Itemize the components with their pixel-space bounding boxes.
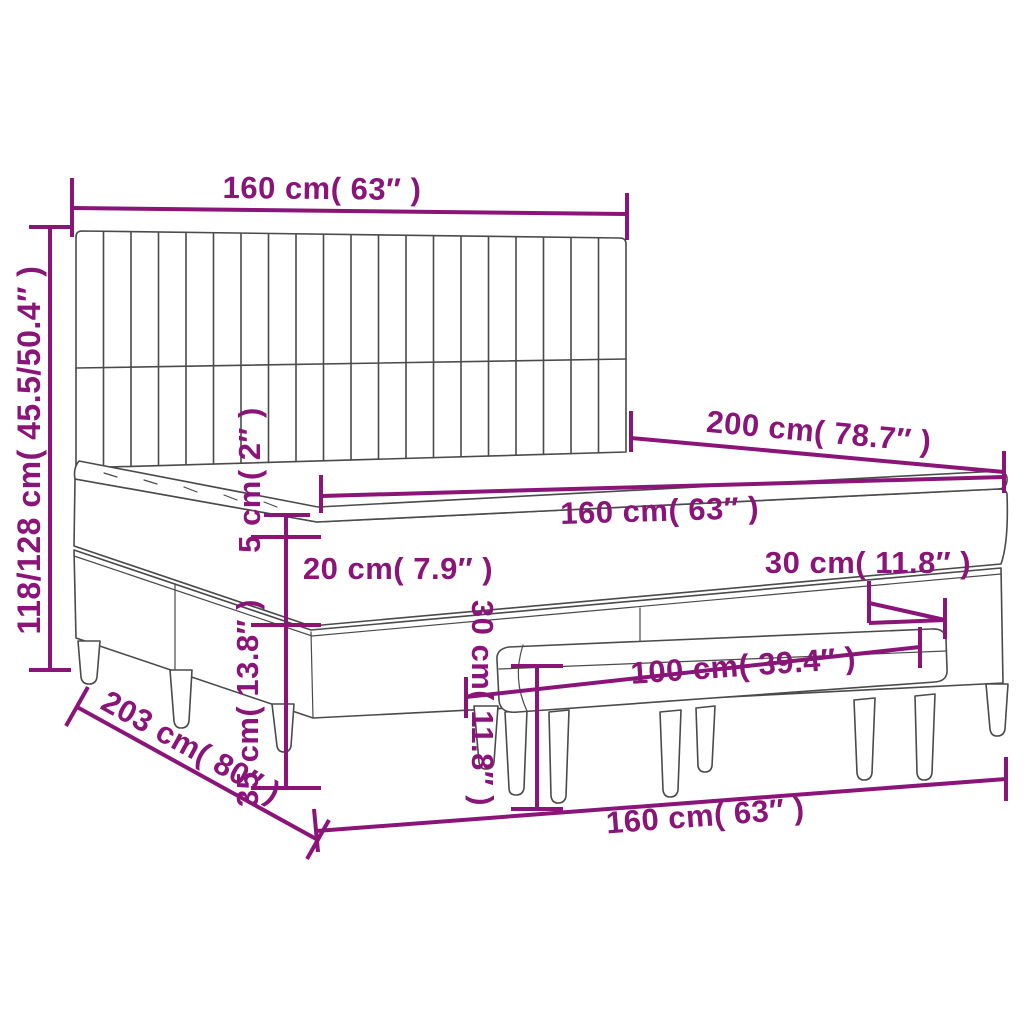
dim-label-headboard-width: 160 cm( 63″ ) <box>222 170 421 207</box>
bed-leg <box>986 684 1008 736</box>
bench-leg <box>549 710 569 803</box>
bench-leg <box>660 710 681 797</box>
dim-label-bed-height: 118/128 cm( 45.5/50.4″ ) <box>11 266 47 635</box>
dim-bed-width-floor: 160 cm( 63″ ) <box>314 757 1006 852</box>
bench-leg <box>505 710 527 795</box>
dim-label-mattress-width: 160 cm( 63″ ) <box>560 490 760 531</box>
bench-leg <box>696 706 715 772</box>
diagram-canvas: 160 cm( 63″ ) 118/128 cm( 45.5/50.4″ ) 2… <box>0 0 1024 1024</box>
dim-label-bench-depth: 30 cm( 11.8″ ) <box>765 545 971 580</box>
dim-headboard-width: 160 cm( 63″ ) <box>72 170 627 240</box>
dim-label-mattress-height: 20 cm( 7.9″ ) <box>303 551 493 586</box>
bench-leg <box>854 698 875 780</box>
dim-bed-height: 118/128 cm( 45.5/50.4″ ) <box>11 227 71 670</box>
dim-label-bed-length: 200 cm( 78.7″ ) <box>705 404 933 459</box>
bed-line-art <box>74 231 1008 803</box>
dim-label-pillowtop-height: 5 cm( 2″ ) <box>232 407 267 553</box>
bed-leg <box>272 704 294 752</box>
dim-label-bench-seat-height: 30 cm( 11.8″ ) <box>465 600 500 806</box>
dim-label-bed-width-floor: 160 cm( 63″ ) <box>605 791 806 841</box>
bench-leg <box>915 694 935 780</box>
bed-leg <box>78 641 100 684</box>
bed-dimension-diagram: 160 cm( 63″ ) 118/128 cm( 45.5/50.4″ ) 2… <box>0 0 1024 1024</box>
